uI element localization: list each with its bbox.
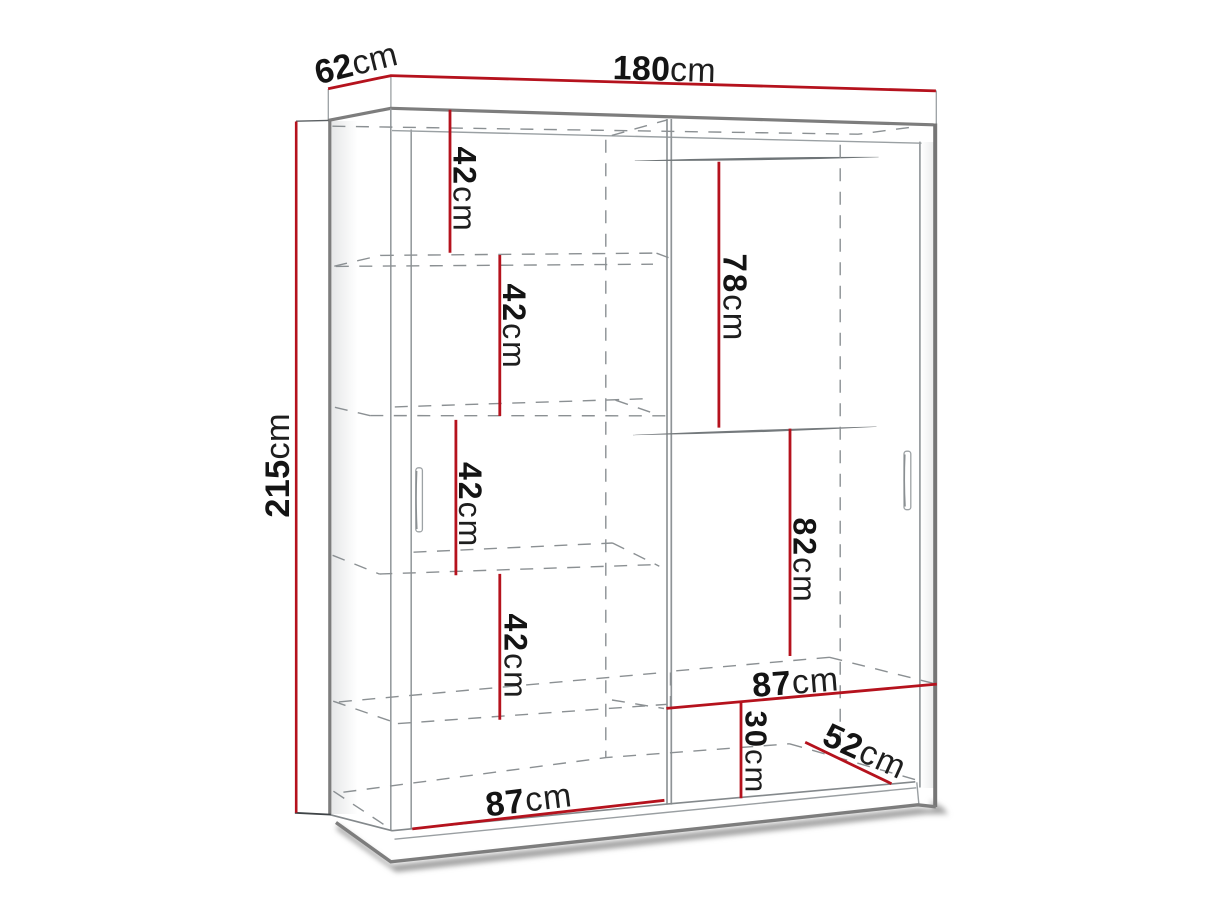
svg-text:87cm: 87cm [751, 660, 841, 705]
svg-text:180cm: 180cm [612, 49, 716, 90]
svg-text:42cm: 42cm [452, 462, 488, 548]
svg-text:87cm: 87cm [483, 776, 574, 824]
svg-text:30cm: 30cm [739, 711, 774, 795]
svg-text:42cm: 42cm [447, 147, 483, 233]
svg-text:215cm: 215cm [259, 413, 297, 518]
svg-text:52cm: 52cm [817, 716, 912, 787]
svg-text:78cm: 78cm [717, 254, 754, 343]
svg-text:82cm: 82cm [787, 518, 823, 604]
svg-text:42cm: 42cm [496, 284, 532, 370]
svg-text:42cm: 42cm [498, 614, 534, 700]
